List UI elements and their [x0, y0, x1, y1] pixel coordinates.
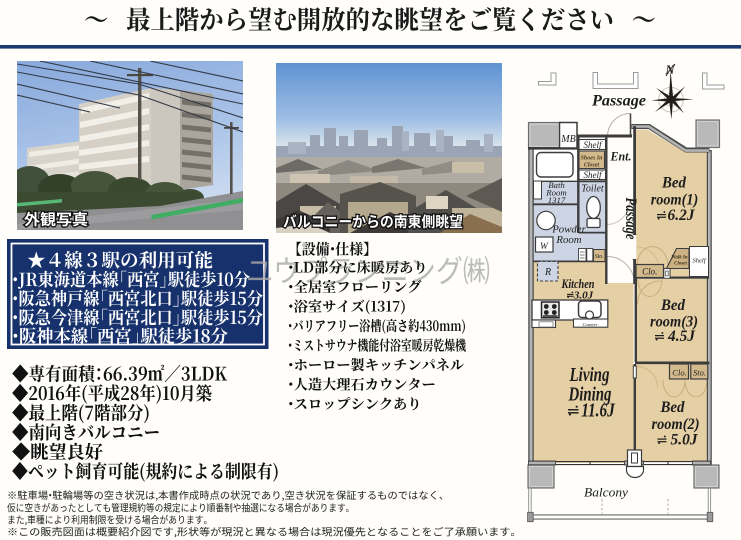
svg-text:11.6J: 11.6J: [581, 399, 615, 421]
svg-text:4.5J: 4.5J: [667, 328, 696, 345]
svg-text:Bed: Bed: [660, 399, 685, 416]
svg-text:Ent.: Ent.: [610, 149, 632, 164]
svg-text:Counter: Counter: [582, 322, 597, 327]
svg-text:Shoes In: Shoes In: [581, 156, 604, 162]
svg-text:6.2J: 6.2J: [668, 207, 696, 224]
svg-text:1317: 1317: [548, 195, 566, 205]
svg-text:Shelf: Shelf: [584, 140, 603, 150]
svg-text:Passage: Passage: [622, 197, 639, 240]
svg-text:5.0J: 5.0J: [671, 432, 699, 449]
svg-text:Bed: Bed: [660, 297, 685, 314]
svg-text:R: R: [544, 267, 551, 278]
svg-text:Room: Room: [555, 234, 581, 246]
svg-text:Balcony: Balcony: [584, 485, 628, 500]
svg-text:W: W: [540, 242, 549, 252]
svg-text:Walk In: Walk In: [671, 256, 688, 261]
svg-text:Passage: Passage: [591, 93, 646, 110]
svg-text:N: N: [664, 63, 675, 77]
svg-text:Shelf: Shelf: [693, 258, 707, 265]
svg-text:MB: MB: [560, 134, 575, 145]
svg-text:Clo.: Clo.: [672, 368, 686, 378]
svg-text:Closet: Closet: [674, 262, 687, 267]
svg-text:Toilet: Toilet: [581, 184, 604, 195]
svg-text:Shelf: Shelf: [584, 170, 603, 180]
svg-text:Sto.: Sto.: [595, 254, 604, 260]
svg-text:3.0J: 3.0J: [573, 289, 594, 301]
svg-text:room(2): room(2): [652, 416, 700, 433]
svg-text:Clo.: Clo.: [642, 267, 657, 277]
svg-text:Bed: Bed: [661, 175, 686, 192]
svg-text:Sto.: Sto.: [693, 368, 706, 378]
svg-text:Closet: Closet: [584, 163, 600, 169]
